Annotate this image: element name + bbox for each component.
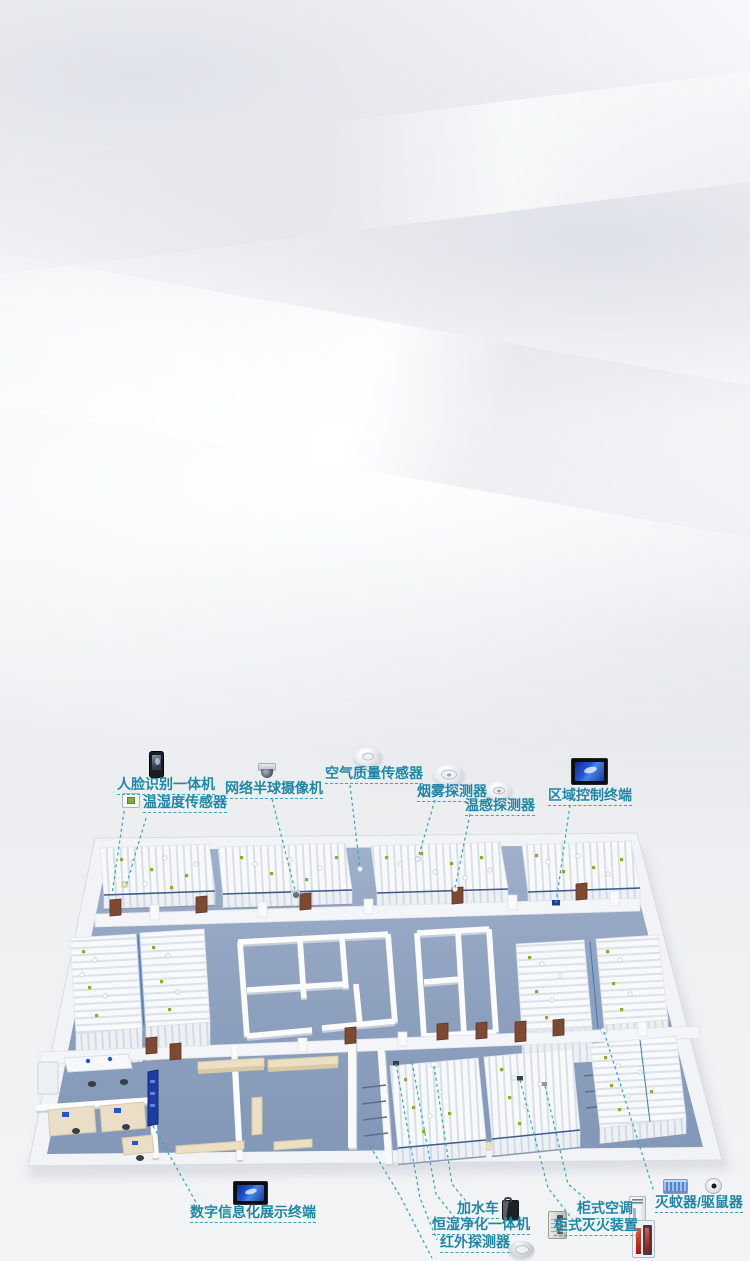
label-air-quality-sensor: 空气质量传感器: [325, 766, 423, 784]
area-control-terminal-icon: [571, 758, 608, 785]
shelving-block: [371, 842, 508, 908]
shelving-block: [516, 940, 592, 1067]
bottom-right-shelving: [590, 1036, 686, 1145]
face-recognition-terminal-icon: [149, 751, 164, 778]
smoke-detector-icon: [434, 765, 464, 785]
rat-repeller-icon: [705, 1178, 722, 1194]
wall-sensor: [122, 882, 127, 887]
floor-plan: [0, 0, 750, 1261]
temp-humidity-sensor-icon: [122, 793, 140, 808]
display-board: [148, 1070, 158, 1126]
label-infrared-detector: 红外探测器: [440, 1235, 510, 1253]
label-heat-detector: 温感探测器: [465, 798, 535, 816]
office-desk: [48, 1106, 96, 1136]
label-humidity-purifier: 恒湿净化一体机: [432, 1217, 530, 1235]
digital-display-terminal-icon: [233, 1181, 268, 1205]
label-network-dome-camera: 网络半球摄像机: [225, 781, 323, 799]
mosquito-killer-icon: [663, 1179, 688, 1194]
label-digital-display-terminal: 数字信息化展示终端: [190, 1205, 316, 1223]
shelving-block: [484, 1049, 580, 1157]
shelving-block: [590, 1036, 686, 1145]
network-dome-camera-icon: [256, 763, 278, 781]
office-chair: [120, 1079, 128, 1085]
storage-cabinet: [38, 1062, 58, 1094]
bench: [252, 1097, 262, 1135]
infrared-detector-icon: [509, 1241, 534, 1258]
smart-archive-infographic: 人脸识别一体机 温湿度传感器 网络半球摄像机 空气质量传感器 烟雾探测器 温感探…: [0, 0, 750, 1261]
label-face-recognition-terminal: 人脸识别一体机: [117, 777, 215, 795]
label-mosquito-rat-repeller: 灭蚊器/驱鼠器: [655, 1195, 743, 1213]
air-quality-sensor-icon: [354, 748, 382, 766]
office-chair: [88, 1081, 96, 1087]
label-temp-humidity-sensor: 温湿度传感器: [143, 795, 227, 813]
label-area-control-terminal: 区域控制终端: [548, 788, 632, 806]
label-cabinet-fire-extinguisher: 柜式灭火装置: [554, 1218, 638, 1236]
shelving-block: [390, 1058, 486, 1165]
